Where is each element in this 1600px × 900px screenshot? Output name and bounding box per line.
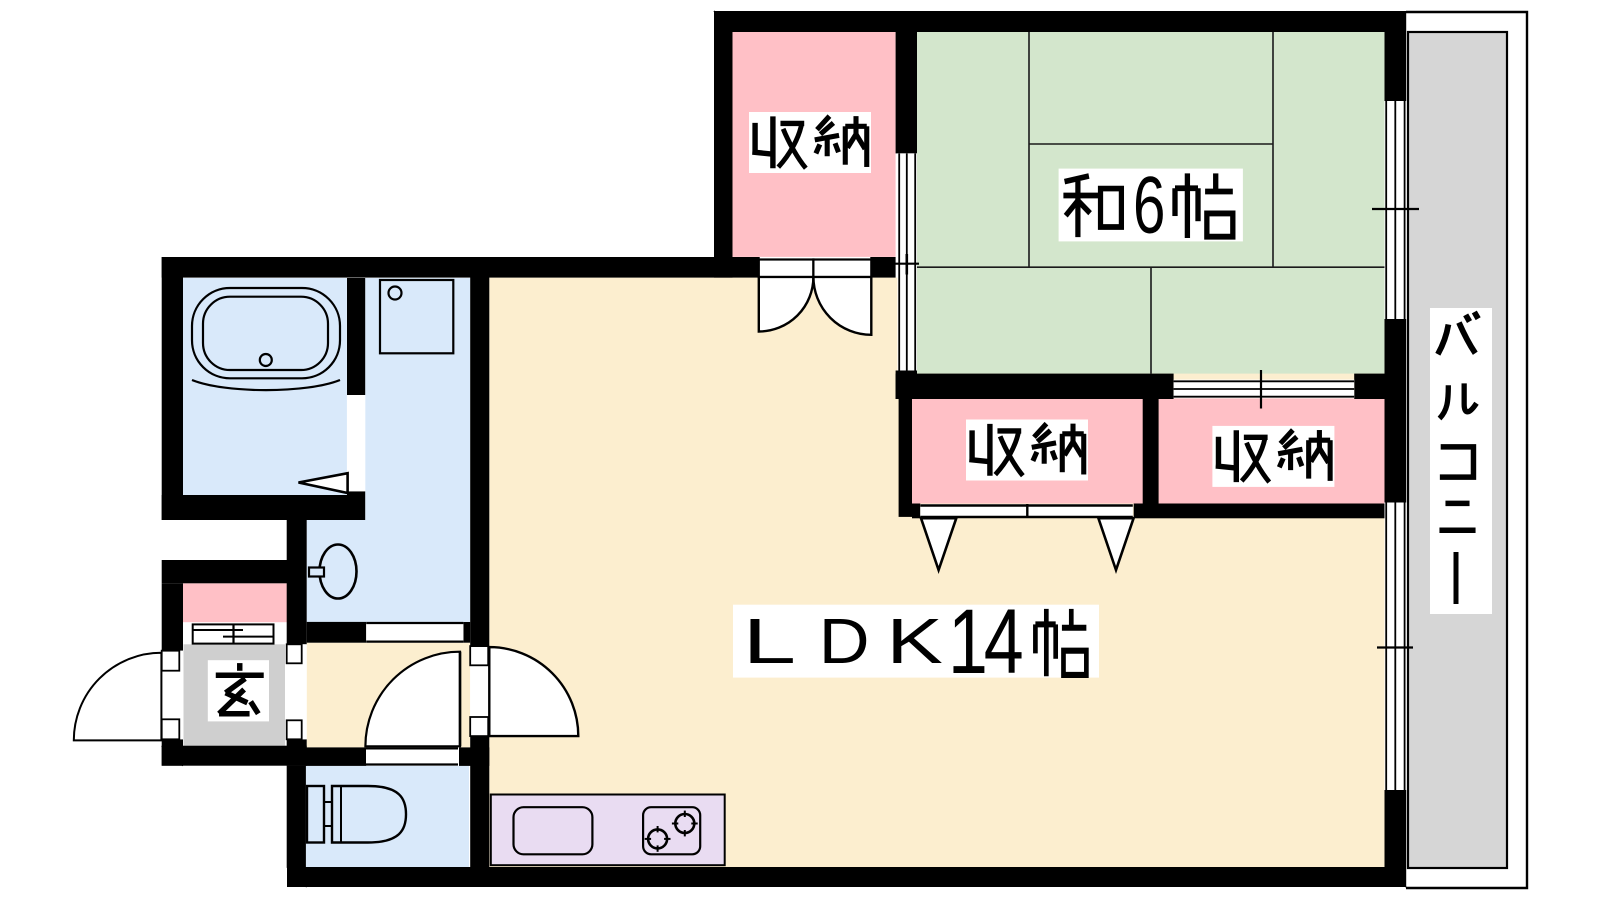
- svg-text:6: 6: [1133, 159, 1165, 250]
- svg-text:L: L: [743, 606, 796, 677]
- svg-text:D: D: [819, 606, 870, 677]
- svg-text:4: 4: [984, 590, 1024, 693]
- svg-text:1: 1: [948, 590, 988, 693]
- svg-text:K: K: [887, 605, 943, 677]
